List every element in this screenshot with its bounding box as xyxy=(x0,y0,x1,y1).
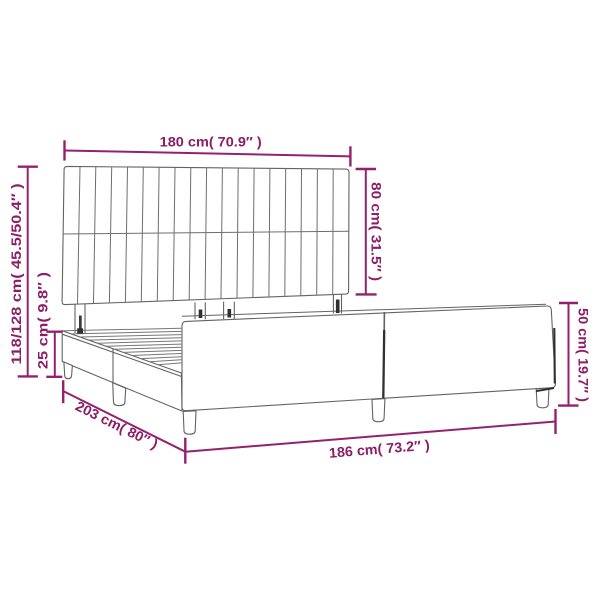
svg-text:186 cm( 73.2″ ): 186 cm( 73.2″ ) xyxy=(328,437,430,461)
svg-text:80 cm( 31.5″ ): 80 cm( 31.5″ ) xyxy=(368,182,384,281)
svg-text:25 cm( 9.8″ ): 25 cm( 9.8″ ) xyxy=(35,272,51,369)
svg-text:50 cm( 19.7″ ): 50 cm( 19.7″ ) xyxy=(576,308,592,402)
svg-text:180 cm( 70.9″ ): 180 cm( 70.9″ ) xyxy=(160,134,262,150)
svg-text:118/128 cm( 45.5/50.4″ ): 118/128 cm( 45.5/50.4″ ) xyxy=(8,184,24,365)
